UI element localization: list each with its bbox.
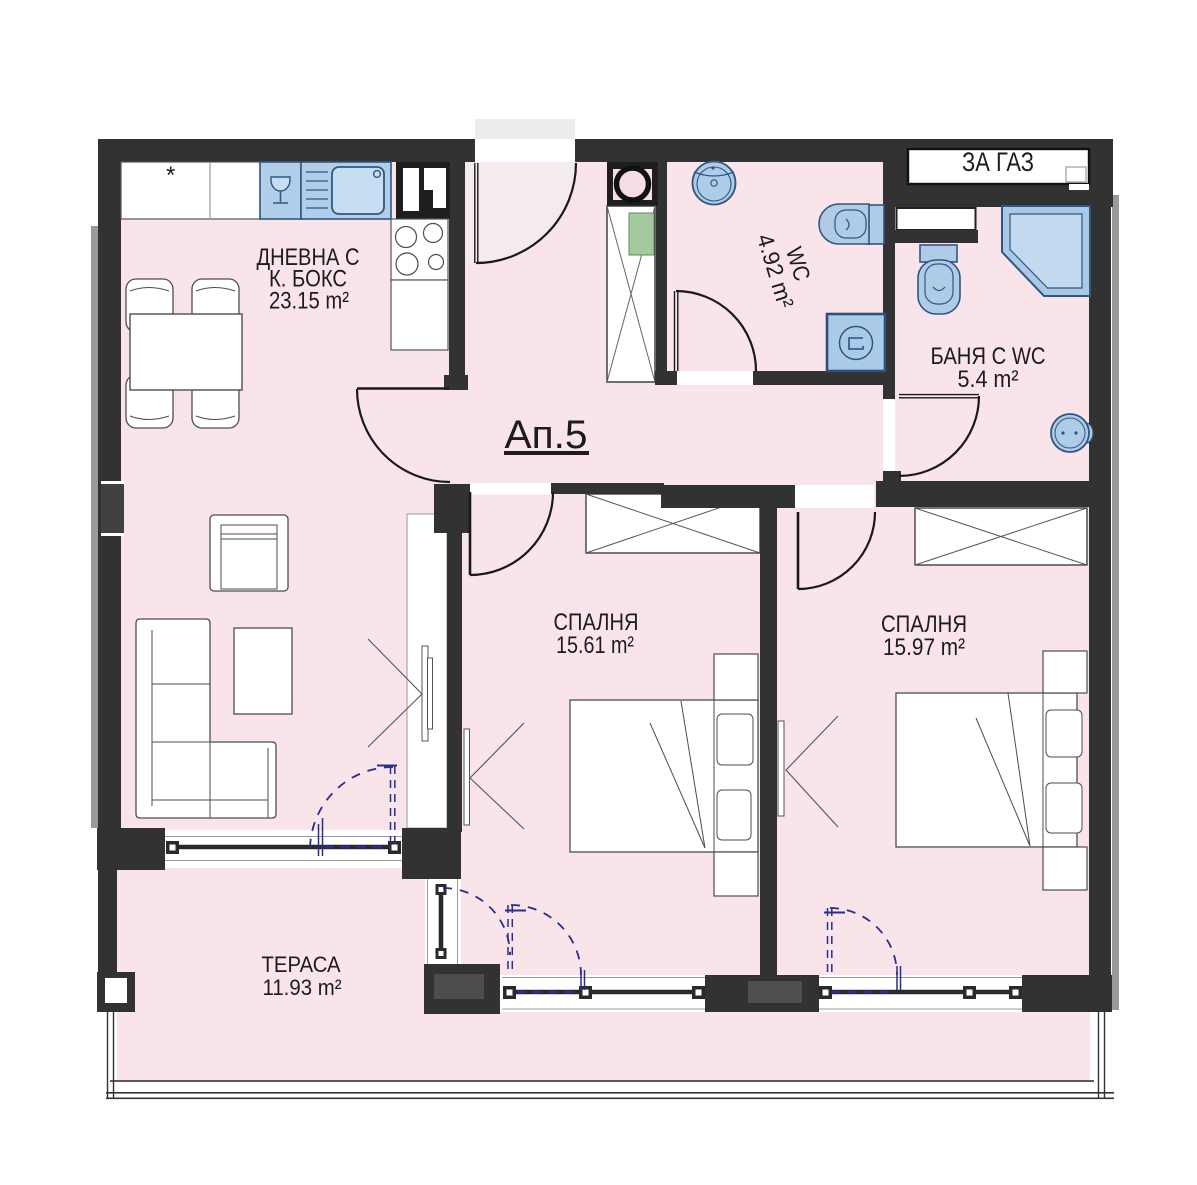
- svg-text:15.97 m²: 15.97 m²: [883, 634, 965, 661]
- svg-text:ЗА ГАЗ: ЗА ГАЗ: [962, 147, 1034, 177]
- svg-text:Ап.5: Ап.5: [505, 413, 588, 457]
- svg-text:ТЕРАСА: ТЕРАСА: [262, 952, 341, 977]
- svg-text:11.93 m²: 11.93 m²: [263, 975, 342, 1000]
- svg-text:5.4 m²: 5.4 m²: [958, 366, 1019, 393]
- svg-text:15.61 m²: 15.61 m²: [556, 632, 634, 659]
- svg-text:*: *: [166, 162, 175, 189]
- svg-text:23.15 m²: 23.15 m²: [269, 288, 349, 315]
